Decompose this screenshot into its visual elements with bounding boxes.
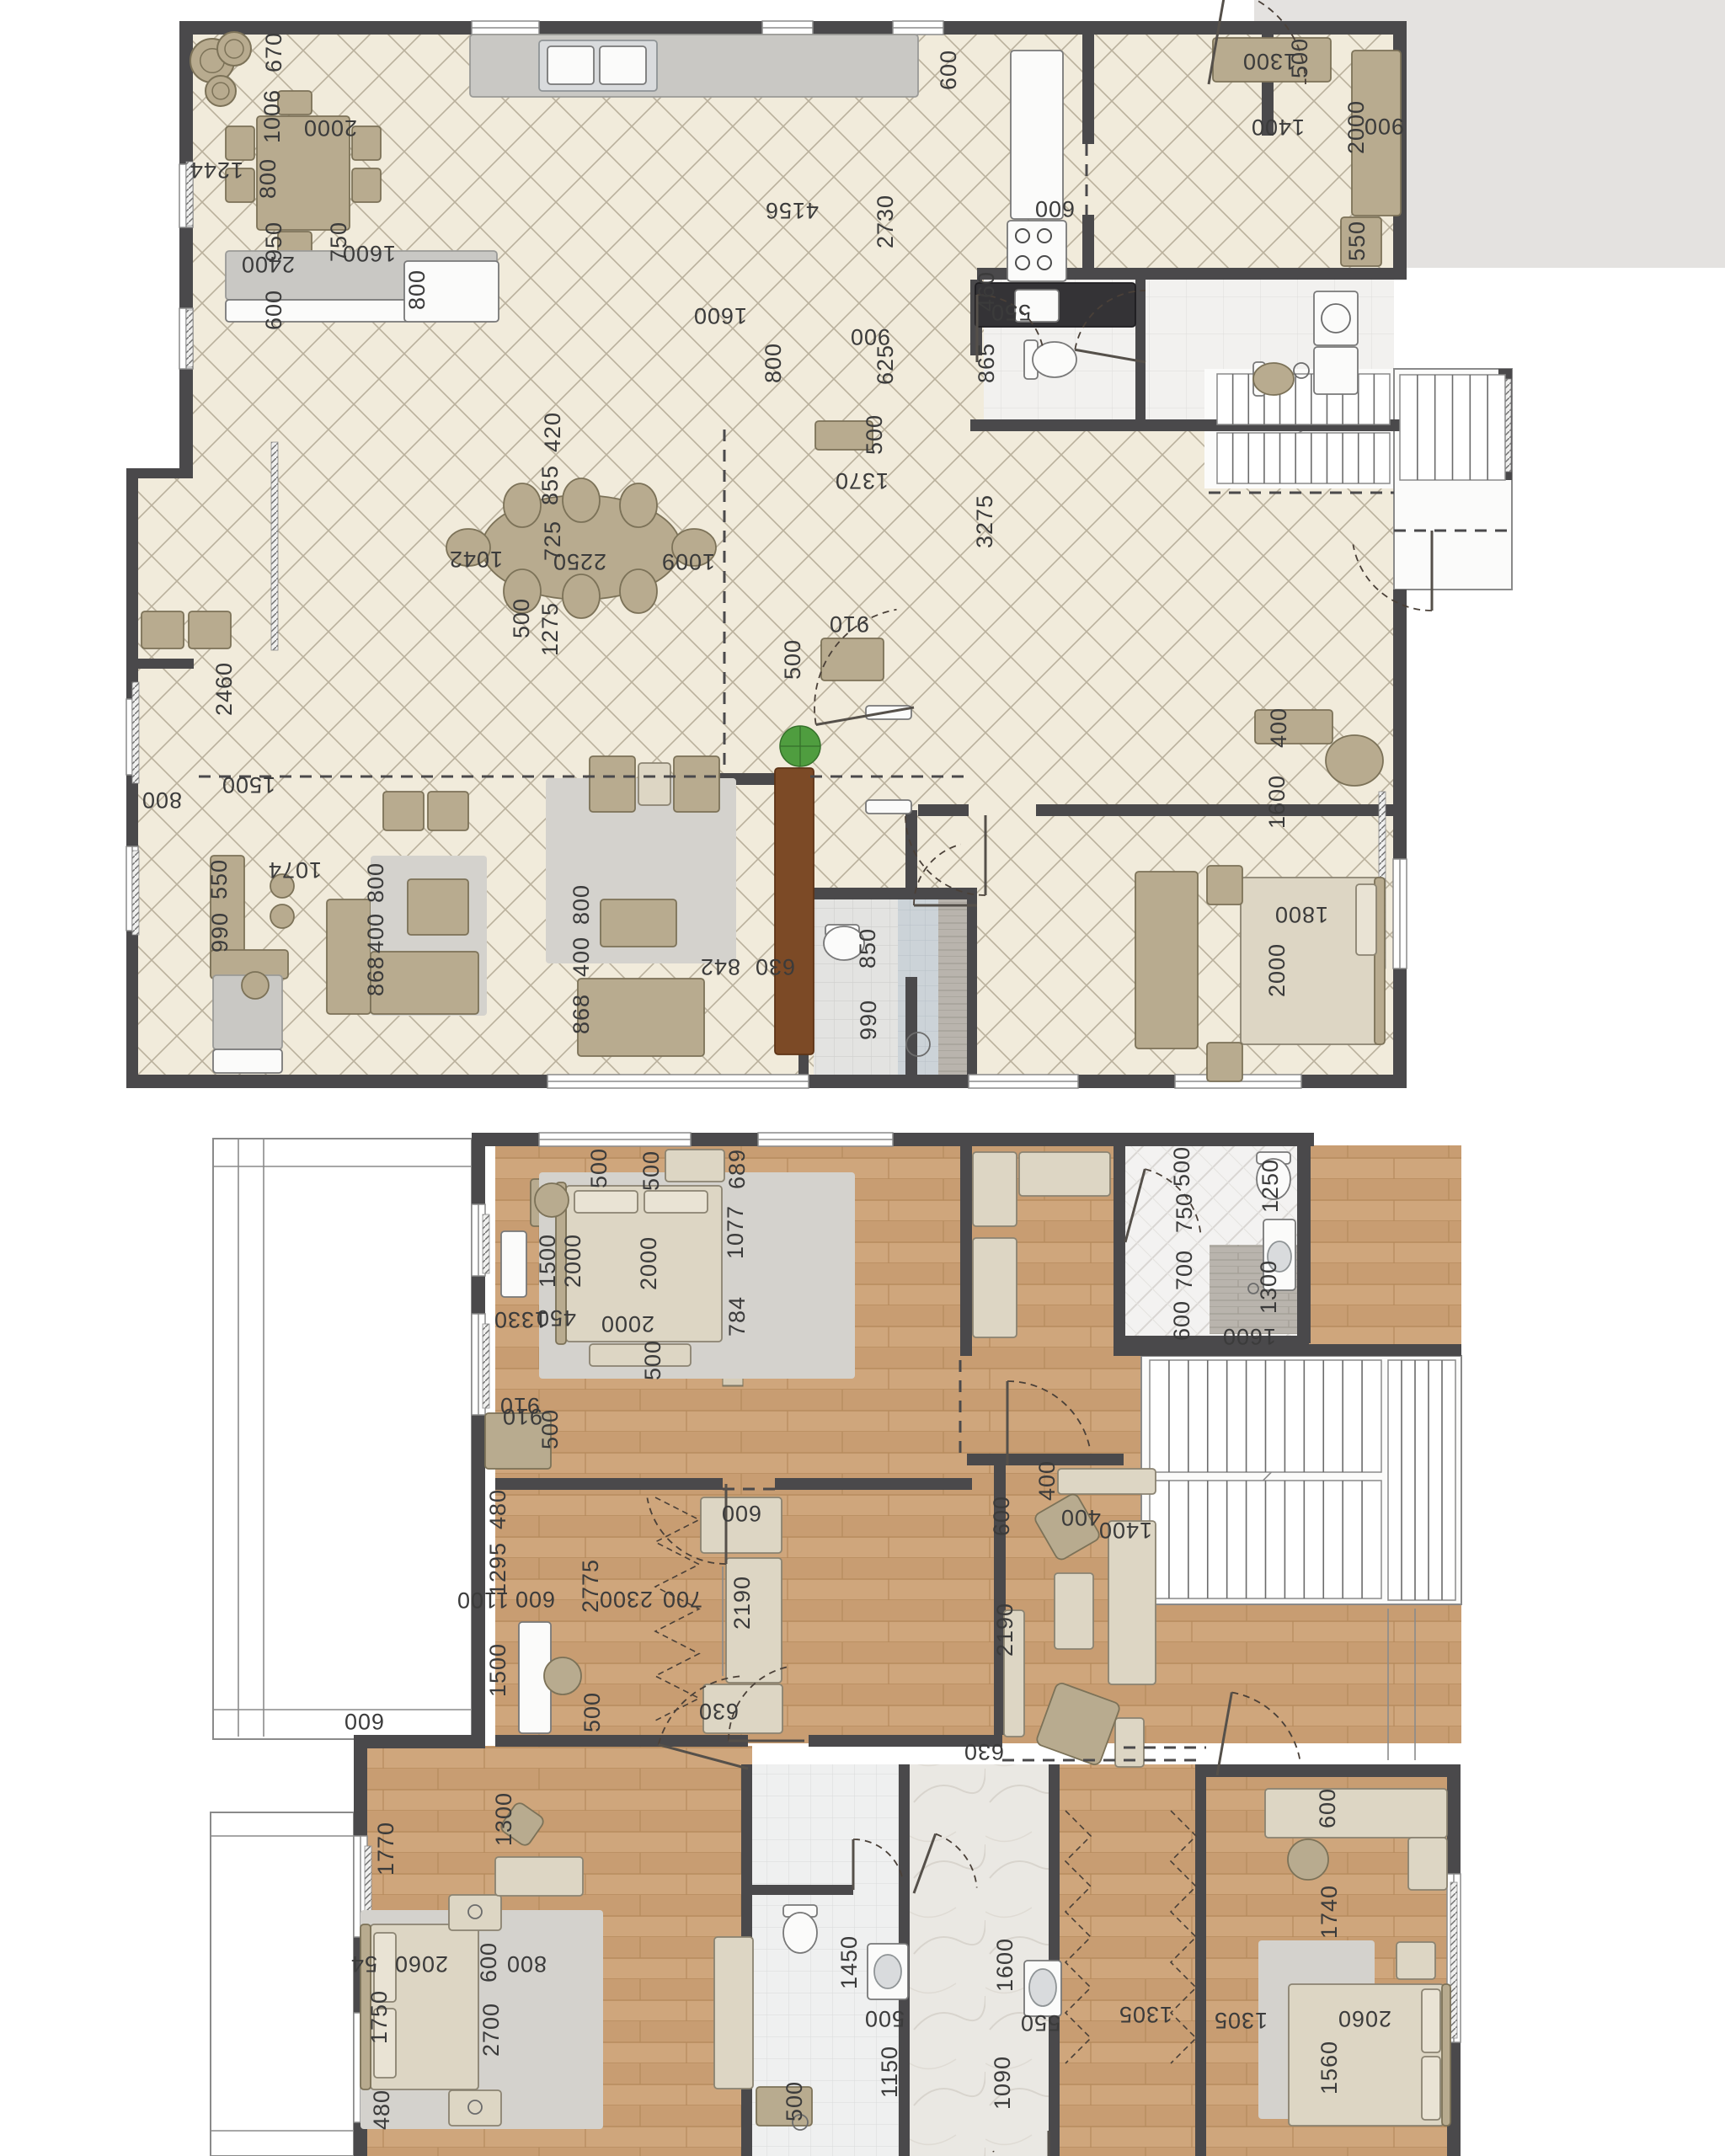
upper-furniture-white: [600, 46, 646, 84]
upper-dim-label: 1042: [449, 547, 503, 572]
upper-dim-label: 990: [856, 1000, 881, 1040]
lower-oval-steel: [874, 1955, 901, 1988]
upper-dim-label: 1244: [190, 157, 243, 183]
upper-furniture-tan: [408, 879, 468, 935]
upper-dim-label: 500: [862, 414, 887, 455]
upper-dim-label: 420: [540, 412, 565, 452]
upper-dim-label: 2000: [1264, 943, 1290, 997]
lower-stool: [535, 1183, 569, 1217]
upper-wall: [126, 659, 194, 669]
upper-furniture-tan: [383, 792, 424, 830]
upper-furniture-tan: [189, 611, 231, 648]
lower-dim-label: 630: [964, 1739, 1004, 1764]
lower-furniture-light: [973, 1238, 1017, 1337]
lower-dim-label: 550: [1020, 2010, 1060, 2036]
lower-floor-wood: [1060, 1764, 1206, 2156]
floor-plan-sheet: 6701006200012448004156273060095024007501…: [0, 0, 1725, 2156]
lower-dim-label: 630: [698, 1699, 739, 1724]
lower-dim-label: 784: [724, 1296, 750, 1337]
upper-oval-tan: [1326, 735, 1383, 786]
lower-dim-label: 600: [1315, 1788, 1340, 1828]
lower-furniture-light: [1408, 1838, 1447, 1890]
upper-dim-label: 1500: [222, 772, 275, 798]
upper-dim-label: 550: [1344, 221, 1370, 261]
upper-wall: [179, 227, 193, 308]
lower-wall: [1206, 1764, 1461, 1777]
upper-dim-label: 800: [761, 343, 786, 383]
upper-dim-label: 855: [537, 465, 563, 505]
lower-oval-steel: [1029, 1969, 1056, 2006]
lower-radiator-hatch: [483, 1324, 489, 1408]
upper-furniture-light: [638, 763, 670, 805]
plan-graphics: 6701006200012448004156273060095024007501…: [126, 0, 1725, 2156]
upper-wall: [905, 977, 917, 1075]
upper-furniture-white: [1314, 347, 1358, 394]
upper-furniture-lightp: [1356, 884, 1376, 955]
lower-dim-label: 1250: [1258, 1159, 1283, 1213]
lower-wall: [472, 1276, 485, 1314]
lower-wall: [1297, 1133, 1311, 1343]
upper-wall: [179, 369, 193, 478]
lower-dim-label: 2000: [601, 1311, 654, 1337]
upper-furniture-white: [1314, 291, 1358, 345]
lower-furniture-light: [1058, 1469, 1156, 1494]
upper-radiator-hatch: [186, 310, 193, 367]
upper-wall: [1036, 804, 1407, 816]
upper-dim-label: 800: [569, 884, 594, 925]
lower-dim-label: 500: [640, 1340, 665, 1380]
lower-furniture-light: [1055, 1573, 1093, 1649]
lower-dim-label: 2190: [729, 1576, 755, 1630]
lower-dim-label: 1450: [836, 1935, 862, 1989]
upper-furniture-tan: [352, 168, 381, 202]
upper-oval-tan: [620, 569, 657, 613]
upper-furniture-tan: [1207, 1043, 1242, 1081]
upper-furniture-tan: [590, 756, 635, 812]
upper-dim-label: 400: [1266, 707, 1291, 748]
upper-radiator-hatch: [132, 682, 139, 783]
lower-dim-label: 2190: [992, 1603, 1017, 1657]
upper-dim-label: 1400: [1251, 115, 1305, 140]
lower-wall: [1114, 1133, 1125, 1347]
lower-dim-label: 2700: [478, 2003, 504, 2057]
lower-wall: [472, 1415, 485, 1495]
upper-dim-label: 865: [974, 343, 999, 383]
lower-furniture-light: [449, 1895, 501, 1930]
upper-dim-label: 910: [829, 611, 869, 637]
upper-wall: [905, 810, 917, 894]
upper-dim-label: 1074: [268, 857, 322, 883]
lower-furniture-lightp: [574, 1191, 638, 1213]
lower-dim-label: 700: [662, 1587, 702, 1612]
lower-dim-label: 450: [536, 1305, 576, 1331]
lower-dim-label: 500: [782, 2081, 807, 2121]
upper-oval-tan: [620, 483, 657, 527]
lower-dim-label: 1300: [491, 1792, 516, 1846]
upper-furniture-tan: [142, 611, 184, 648]
upper-stair-flight: [1217, 374, 1390, 424]
upper-furniture-counter: [470, 35, 918, 97]
upper-dim-label: 1600: [342, 241, 396, 266]
upper-wall: [918, 804, 969, 816]
upper-floor-tile: [138, 476, 192, 1075]
lower-furniture-lightp: [1422, 1989, 1440, 2052]
lower-furniture-light: [665, 1150, 724, 1182]
upper-floor-bluetile: [898, 899, 938, 1075]
lower-dim-label: 1560: [1316, 2041, 1342, 2095]
lower-stair-flight: [1388, 1360, 1455, 1600]
upper-dim-label: 400: [363, 913, 388, 953]
lower-dim-label: 1100: [457, 1588, 509, 1613]
lower-wall: [1447, 1777, 1461, 1874]
lower-dim-label: 2060: [394, 1951, 448, 1977]
lower-furniture-light: [1108, 1521, 1156, 1684]
upper-dim-label: 2400: [241, 252, 295, 277]
lower-furniture-lightp: [1422, 2057, 1440, 2120]
lower-furniture-light: [1019, 1152, 1110, 1196]
upper-stair-flight: [1217, 433, 1390, 483]
lower-dim-label: 500: [638, 1150, 664, 1191]
upper-oval-tan: [504, 483, 541, 527]
upper-oval-white: [1033, 342, 1076, 377]
upper-dim-label: 1600: [693, 303, 747, 328]
lower-wall: [495, 1735, 748, 1747]
lower-dim-label: 400: [1034, 1460, 1060, 1501]
upper-dim-label: 1800: [1274, 902, 1328, 927]
upper-dim-label: 400: [569, 937, 594, 977]
lower-dim-label: 480: [369, 2089, 394, 2130]
lower-dim-label: 1305: [1214, 2008, 1268, 2033]
lower-dim-label: 500: [579, 1692, 605, 1732]
lower-dim-label: 600: [476, 1942, 501, 1983]
lower-wall: [354, 1735, 485, 1748]
upper-pendant-lamp-icon: [206, 76, 236, 106]
upper-dim-label: 800: [142, 787, 182, 813]
upper-dim-label: 670: [261, 32, 286, 72]
lower-dim-label: 700: [1172, 1250, 1197, 1290]
upper-dim-label: 800: [363, 862, 388, 903]
lower-dim-label: 1770: [373, 1822, 398, 1876]
upper-dim-label: 630: [755, 954, 795, 979]
upper-radiator-hatch: [132, 851, 139, 935]
lower-dim-label: 910: [502, 1404, 542, 1429]
lower-dim-label: 1305: [1119, 2002, 1172, 2027]
lower-dim-label: 1740: [1316, 1885, 1342, 1939]
lower-dim-label: 500: [864, 2006, 905, 2031]
lower-stool: [544, 1657, 581, 1694]
upper-dim-label: 500: [1287, 38, 1312, 78]
upper-dim-label: 1600: [1264, 775, 1290, 829]
lower-furniture-light: [1397, 1942, 1435, 1979]
lower-furniture-light: [1289, 1984, 1444, 2126]
upper-dim-label: 3275: [972, 494, 997, 548]
upper-dim-label: 1275: [537, 602, 563, 656]
lower-dim-label: 1600: [1222, 1324, 1276, 1349]
lower-dim-label: 2000: [560, 1234, 585, 1288]
upper-dim-label: 4156: [765, 198, 819, 223]
upper-dim-label: 600: [936, 50, 961, 90]
upper-oval-tan: [563, 478, 600, 522]
lower-dim-label: 400: [1060, 1505, 1101, 1530]
upper-oval-tan: [1253, 363, 1294, 395]
lower-dim-label: 689: [724, 1149, 750, 1189]
lower-dim-label: 1750: [366, 1990, 392, 2044]
lower-balcony-outline: [211, 1812, 354, 2156]
upper-wall: [179, 21, 193, 164]
upper-dim-label: 868: [363, 956, 388, 996]
lower-dim-label: 480: [485, 1489, 510, 1529]
lower-dim-label: 1500: [535, 1234, 560, 1288]
lower-wall: [752, 1885, 853, 1895]
upper-dim-label: 990: [207, 912, 232, 953]
lower-furniture-light: [495, 1857, 583, 1896]
lower-dim-label: 800: [506, 1951, 547, 1977]
lower-wall: [472, 1495, 485, 1739]
lower-wall: [960, 1145, 972, 1356]
lower-wall: [495, 1478, 723, 1490]
upper-furniture-white: [547, 46, 594, 84]
lower-dim-label: 2300: [599, 1587, 653, 1612]
upper-dim-label: 550: [206, 859, 232, 899]
upper-dim-label: 2250: [553, 549, 606, 574]
lower-wall: [1195, 1764, 1206, 2156]
upper-dim-label: 800: [255, 158, 280, 199]
upper-furniture-tan: [226, 126, 254, 160]
lower-stool: [1288, 1839, 1328, 1880]
upper-wall: [1082, 215, 1094, 280]
upper-dim-label: 625: [873, 344, 898, 385]
lower-oval-white: [783, 1913, 817, 1953]
upper-furniture-tan: [578, 979, 704, 1056]
lower-wall: [472, 1133, 485, 1204]
upper-wall: [126, 468, 138, 672]
lower-radiator-hatch: [1450, 1882, 1457, 2038]
upper-furniture-white: [1007, 221, 1066, 281]
upper-radiator-hatch: [271, 442, 278, 650]
lower-dim-label: 1300: [1256, 1260, 1281, 1314]
lower-dim-label: 600: [1169, 1300, 1194, 1341]
upper-pendant-lamp-icon: [217, 32, 251, 66]
upper-dim-label: 550: [991, 300, 1031, 325]
upper-furniture-tan: [601, 899, 676, 947]
lower-dim-label: 2060: [1338, 2006, 1391, 2031]
upper-dim-label: 600: [1034, 196, 1075, 221]
lower-dim-label: 2000: [636, 1236, 661, 1290]
upper-dim-label: 1370: [835, 468, 889, 494]
upper-dim-label: 842: [700, 954, 740, 979]
floor-plan-canvas: 6701006200012448004156273060095024007501…: [0, 0, 1725, 2156]
lower-furniture-tan: [1442, 1984, 1450, 2126]
upper-wall: [1082, 35, 1094, 144]
upper-dim-label: 500: [780, 639, 805, 680]
lower-dim-label: 600: [515, 1587, 555, 1612]
upper-furniture-tan: [428, 792, 468, 830]
lower-dim-label: 1600: [992, 1938, 1017, 1992]
upper-furniture-white: [1011, 51, 1063, 219]
lower-furniture-white: [501, 1231, 526, 1297]
lower-furniture-lightp: [644, 1191, 708, 1213]
lower-wall: [1114, 1344, 1461, 1356]
upper-furniture-tan: [1135, 872, 1198, 1049]
upper-dim-label: 500: [509, 598, 534, 638]
lower-balcony-outline: [213, 1139, 472, 1739]
lower-dim-label: 1500: [485, 1643, 510, 1697]
upper-dim-label: 900: [1364, 114, 1404, 139]
lower-dim-label: 500: [1169, 1146, 1194, 1187]
lower-dim-label: 600: [721, 1501, 761, 1526]
upper-furniture-tan: [821, 638, 884, 680]
upper-stool: [270, 905, 294, 928]
lower-furniture-light: [714, 1937, 753, 2089]
lower-dim-label: 500: [586, 1148, 611, 1188]
upper-furniture-white: [866, 800, 911, 814]
upper-dim-label: 2460: [211, 662, 237, 716]
lower-dim-label: 600: [344, 1709, 384, 1734]
lower-dim-label: 1090: [990, 2056, 1015, 2110]
upper-dim-label: 2730: [873, 195, 898, 248]
upper-furniture-tan: [1207, 866, 1242, 905]
upper-dim-label: 2000: [303, 115, 357, 141]
upper-wall: [1135, 280, 1146, 430]
lower-radiator-hatch: [483, 1214, 489, 1273]
upper-wall: [1393, 590, 1407, 1088]
lower-furniture-light: [1265, 1789, 1447, 1838]
lower-dim-label: 54: [350, 1951, 377, 1977]
upper-dim-label: 1009: [661, 549, 715, 574]
lower-dim-label: 1077: [723, 1205, 748, 1259]
lower-dim-label: 1150: [877, 2046, 902, 2098]
lower-dim-label: 600: [989, 1496, 1014, 1536]
upper-dim-label: 850: [855, 928, 880, 969]
lower-dim-label: 750: [1172, 1193, 1197, 1233]
upper-dim-label: 1006: [259, 89, 285, 143]
upper-dim-label: 600: [261, 290, 286, 330]
lower-dim-label: 1400: [1098, 1518, 1152, 1543]
upper-furniture-wood: [775, 768, 814, 1054]
upper-stool: [242, 972, 269, 999]
lower-furniture-light: [449, 2090, 501, 2126]
upper-oval-tan: [563, 574, 600, 618]
upper-wall: [967, 888, 977, 1075]
upper-furniture-white: [213, 1049, 282, 1073]
lower-furniture-light: [973, 1152, 1017, 1226]
upper-dim-label: 800: [404, 269, 430, 310]
upper-dim-label: 868: [569, 994, 594, 1034]
upper-wall: [136, 468, 192, 478]
lower-wall: [775, 1478, 972, 1490]
upper-furniture-tan: [674, 756, 719, 812]
upper-wall: [798, 888, 977, 899]
